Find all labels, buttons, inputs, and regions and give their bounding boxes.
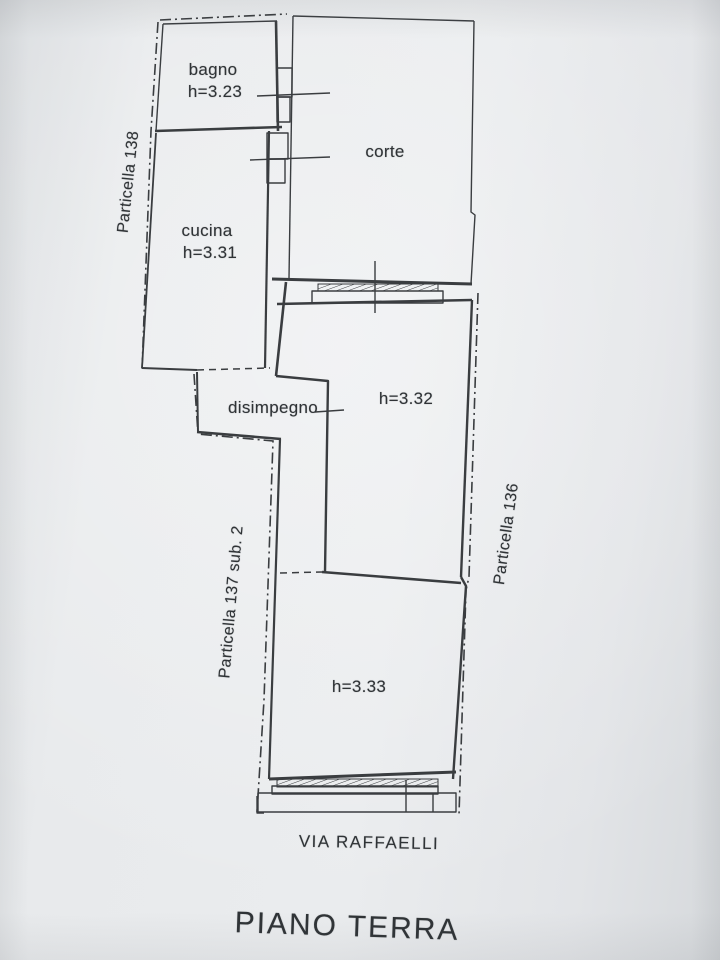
room-height-332: h=3.32 (379, 389, 433, 409)
floor-plan-drawing (0, 0, 720, 960)
room-label-disimpegno: disimpegno (228, 398, 318, 418)
hatched-sills (277, 284, 438, 787)
room-height-cucina: h=3.31 (183, 243, 237, 263)
floor-plan-page: bagno h=3.23 corte cucina h=3.31 disimpe… (0, 0, 720, 960)
room-height-333: h=3.33 (332, 677, 386, 697)
room-label-corte: corte (365, 142, 404, 162)
room-height-bagno: h=3.23 (188, 82, 242, 102)
room-label-bagno: bagno (189, 60, 238, 80)
street-label: VIA RAFFAELLI (299, 832, 440, 854)
room-label-cucina: cucina (182, 221, 233, 241)
